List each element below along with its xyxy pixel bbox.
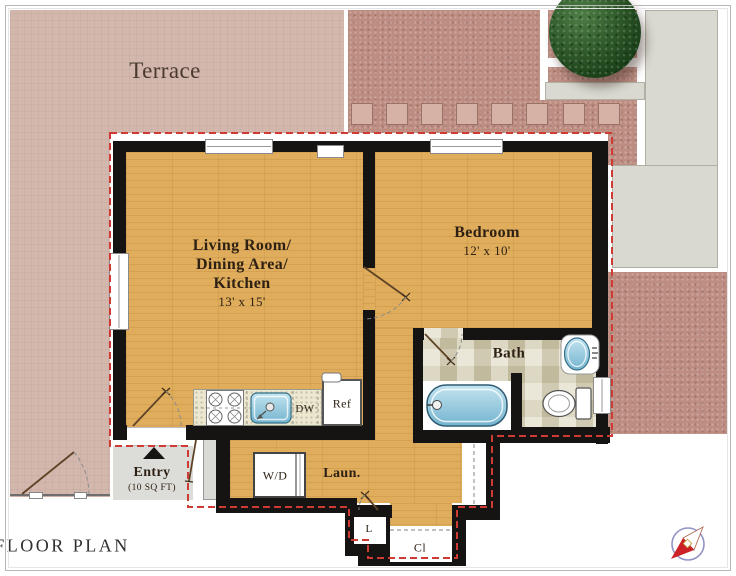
refrigerator-label: Ref (333, 397, 352, 412)
paver-square (456, 103, 478, 125)
wall-top (113, 141, 607, 152)
paver-square (421, 103, 443, 125)
terrace-gate-jamb (74, 492, 87, 499)
bath-door-sill (424, 328, 464, 338)
dishwasher-label: DW (295, 403, 314, 415)
walkway-lower (612, 165, 718, 268)
bedroom-window (430, 139, 503, 154)
bath-window (593, 377, 611, 414)
terrace-bottom-edge (10, 494, 110, 496)
wall-bath-left (413, 335, 423, 434)
terrace-gate-jamb (29, 492, 43, 499)
closet-label: Cl (414, 541, 426, 556)
wall-bath-inner (511, 373, 522, 434)
page-title: FLOOR PLAN (0, 536, 130, 557)
wall-vent-box (317, 145, 344, 158)
walkway-band (545, 82, 645, 100)
bedroom-dims: 12' x 10' (463, 243, 510, 259)
compass-icon (671, 527, 704, 560)
paver-square (491, 103, 513, 125)
paver-square (598, 103, 620, 125)
living-room-dims: 13' x 15' (218, 294, 265, 310)
linen-label: L (365, 523, 372, 535)
laundry-label: Laun. (323, 466, 360, 482)
floor-plan-canvas: Terrace Living Room/ Dining Area/ Kitche… (0, 0, 736, 576)
bedroom-doorway-floor (363, 268, 375, 310)
paver-square (526, 103, 548, 125)
left-window (109, 253, 129, 330)
living-room-label-2: Dining Area/ (196, 256, 288, 274)
bath-label: Bath (493, 346, 525, 363)
paver-square (386, 103, 408, 125)
paver-square (351, 103, 373, 125)
paver-square (563, 103, 585, 125)
entry-opening-sill (127, 427, 188, 446)
planter-gap-left (540, 10, 548, 68)
entry-area-label: (10 SQ FT) (128, 483, 176, 493)
corridor-floor (375, 328, 413, 443)
wall-laundry-bottom (216, 498, 357, 513)
wall-divider-lower (363, 310, 375, 440)
entry-label: Entry (134, 465, 171, 481)
wall-bath-top (463, 328, 602, 340)
stove (206, 390, 244, 426)
wall-divider-upper (363, 152, 375, 268)
living-window (205, 139, 273, 154)
washer-dryer-label: W/D (263, 469, 288, 484)
living-room-label-3: Kitchen (213, 275, 270, 293)
terrace-area-left (10, 10, 110, 497)
wall-kitchen-bottom (186, 425, 372, 440)
living-room-label-1: Living Room/ (193, 237, 292, 255)
pavement-top-band (348, 10, 540, 100)
wall-bath-bottom (413, 427, 610, 443)
wall-hall-right (486, 438, 500, 520)
wall-bedroom-right (592, 141, 608, 332)
terrace-label: Terrace (129, 58, 200, 84)
pavement-block-right (605, 272, 728, 434)
wall-kitchen-bottom-corner (113, 425, 127, 440)
bedroom-label: Bedroom (454, 224, 520, 242)
